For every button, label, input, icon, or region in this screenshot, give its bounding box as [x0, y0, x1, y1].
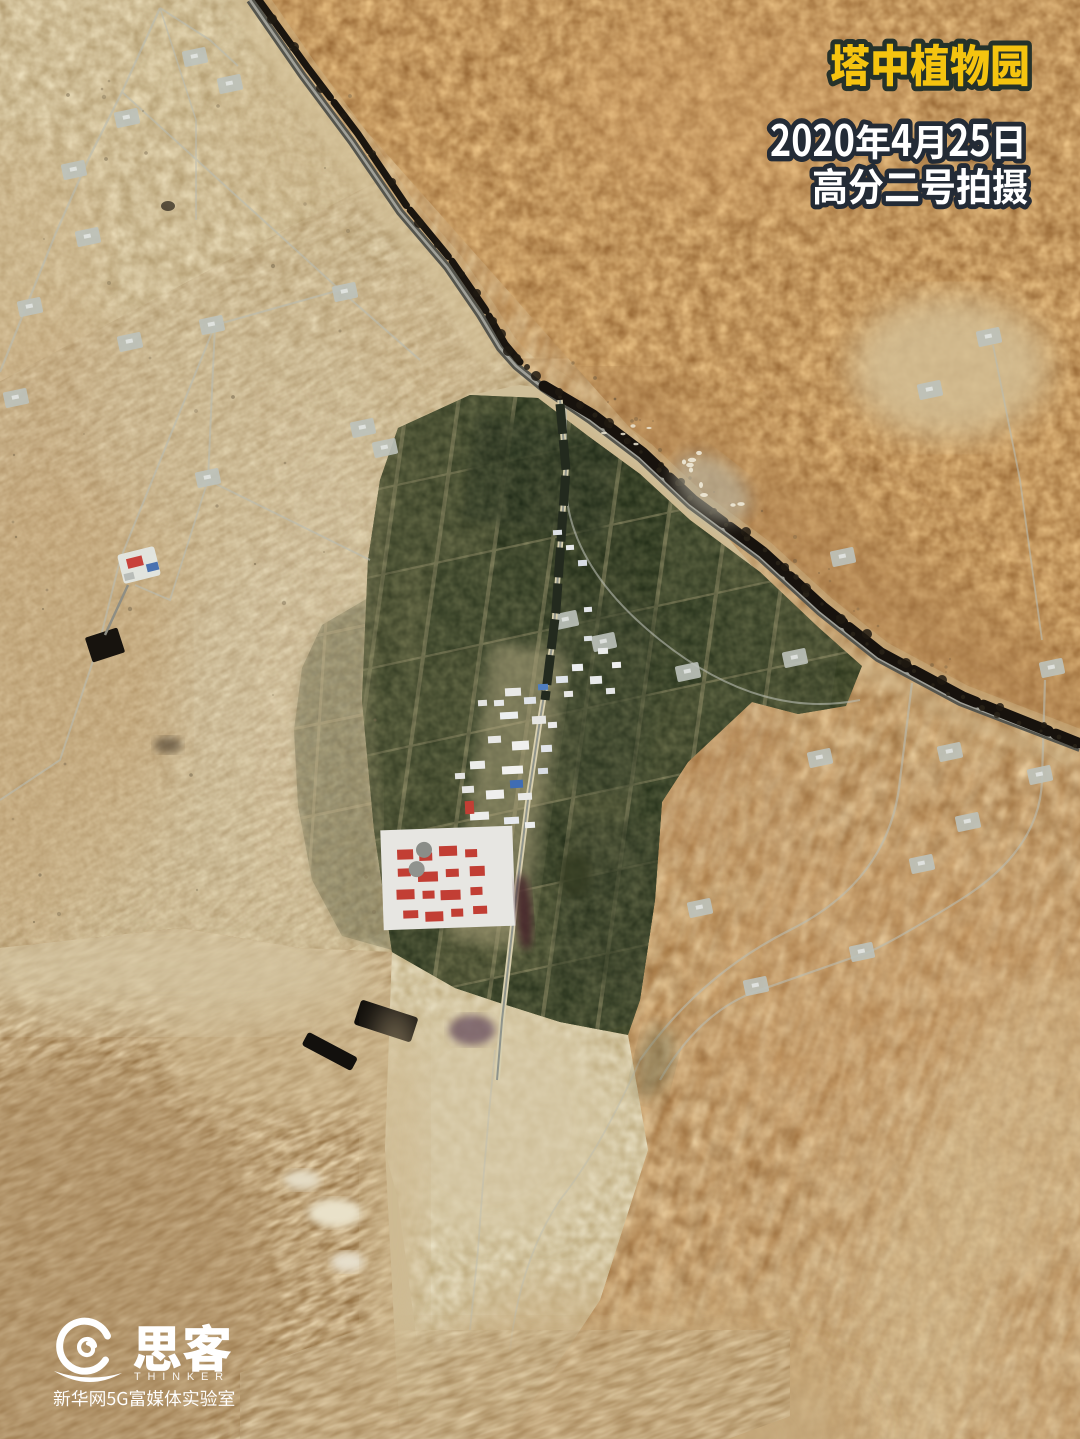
svg-text:THINKER: THINKER: [134, 1371, 230, 1383]
